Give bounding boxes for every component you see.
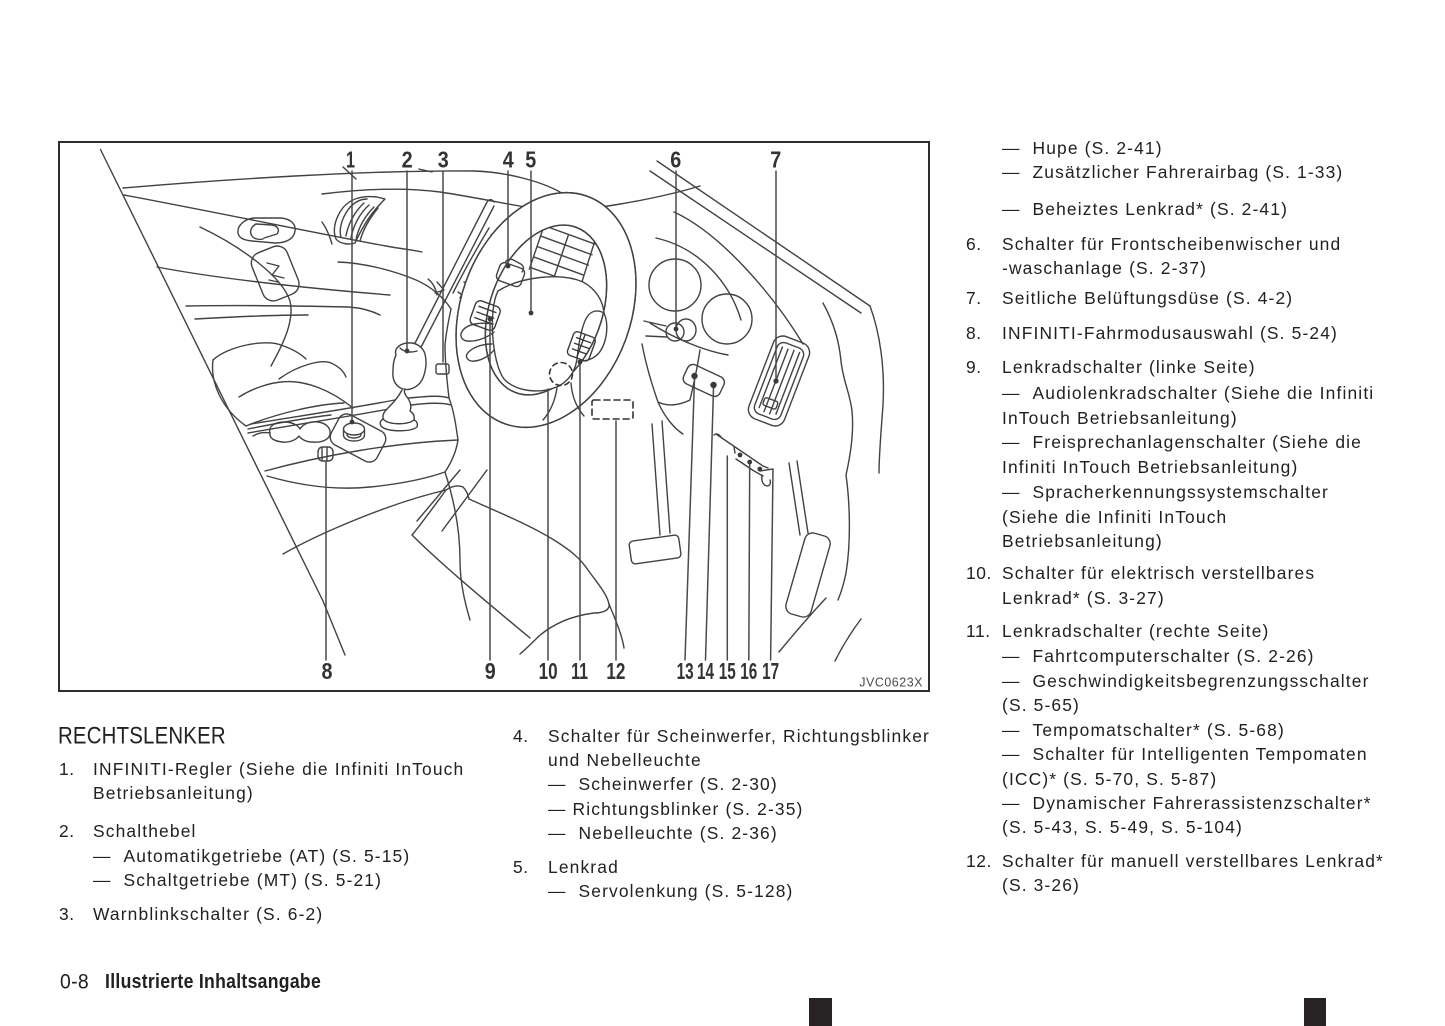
svg-text:4: 4: [503, 147, 514, 173]
svg-text:16: 16: [740, 658, 757, 684]
svg-text:12: 12: [606, 658, 625, 684]
svg-text:1: 1: [346, 147, 355, 173]
svg-text:15: 15: [719, 658, 736, 684]
svg-text:8: 8: [322, 658, 333, 684]
svg-text:JVC0623X: JVC0623X: [859, 676, 923, 689]
svg-text:5: 5: [525, 147, 536, 173]
svg-text:2: 2: [402, 147, 413, 173]
svg-text:6: 6: [670, 147, 681, 173]
svg-text:10: 10: [539, 658, 558, 684]
svg-text:13: 13: [677, 658, 694, 684]
svg-text:11: 11: [571, 658, 588, 684]
svg-text:3: 3: [438, 147, 449, 173]
svg-text:9: 9: [485, 658, 496, 684]
svg-text:17: 17: [762, 658, 779, 684]
svg-text:14: 14: [697, 658, 714, 684]
svg-text:7: 7: [770, 147, 781, 173]
